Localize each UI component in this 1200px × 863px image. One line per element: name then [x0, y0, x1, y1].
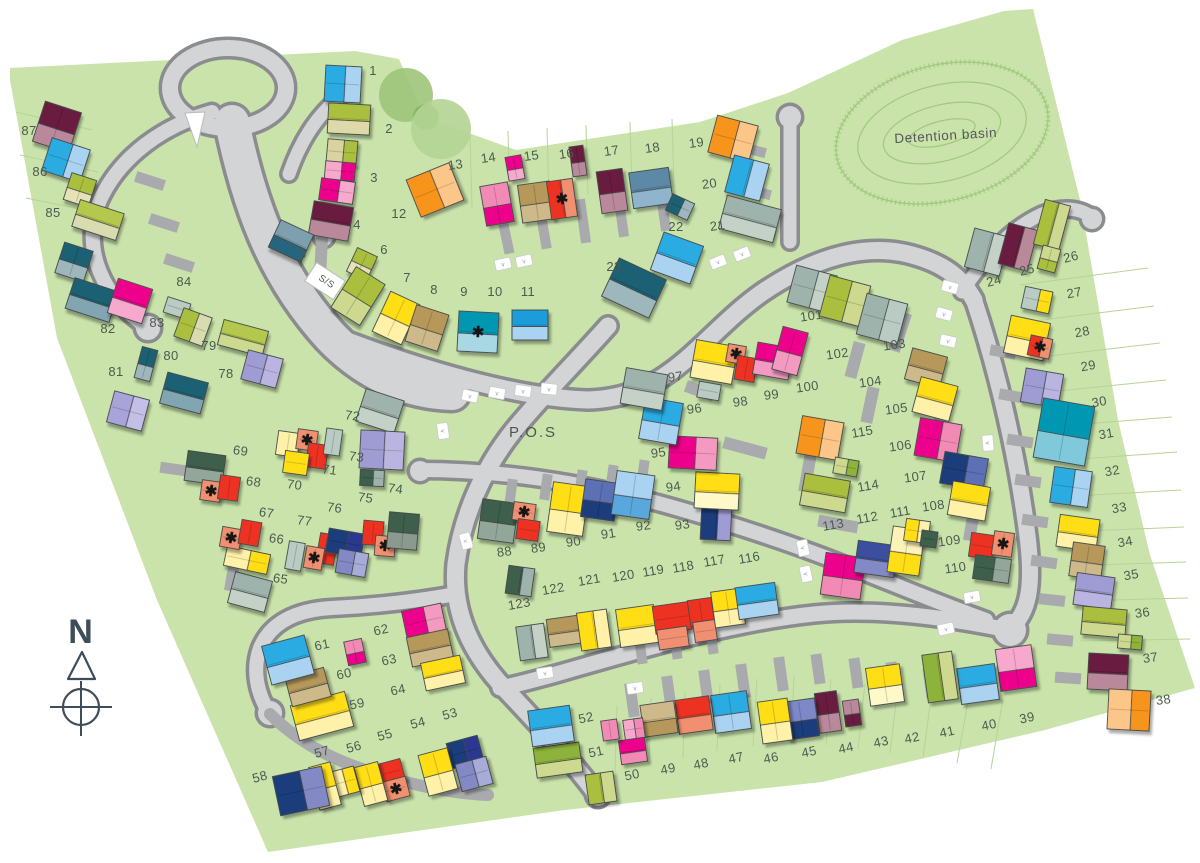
star-marker: ✱	[471, 324, 485, 342]
plot-number-label: 72	[344, 407, 361, 424]
house-footprint	[640, 701, 678, 737]
plot-number-label: 71	[321, 461, 338, 478]
house-footprint	[528, 705, 575, 746]
plot-number-label: 27	[1065, 284, 1083, 301]
plot-number-label: 84	[176, 274, 191, 289]
plot-number-label: 65	[272, 570, 289, 587]
house-footprint: ✱	[1027, 335, 1053, 359]
house-wing	[327, 119, 370, 135]
plot-number-label: 61	[313, 636, 331, 654]
plot-number-label: 89	[530, 539, 547, 556]
house-footprint	[620, 368, 668, 411]
plot-number-label: 109	[937, 532, 962, 550]
house-wing	[694, 492, 739, 510]
house-footprint	[360, 469, 385, 486]
plot-number-label: 49	[659, 760, 677, 778]
house-footprint	[512, 310, 548, 340]
visitor-parking-marker: v	[963, 590, 981, 604]
plot-number-label: 22	[668, 219, 683, 234]
house-footprint	[973, 555, 1012, 584]
plot-number-label: 38	[1155, 691, 1172, 708]
house-footprint	[623, 718, 646, 741]
plot-number-label: 88	[496, 543, 513, 560]
plot-number-label: 41	[938, 723, 956, 741]
house-footprint	[947, 481, 990, 521]
plot-number-label: 13	[447, 156, 464, 173]
plot-number-label: 76	[326, 499, 343, 516]
plot-number-label: 14	[480, 149, 497, 166]
plot-number-label: 44	[837, 739, 855, 757]
plot-number-label: 92	[635, 517, 652, 534]
plot-number-label: 107	[903, 468, 928, 486]
plot-number-label: 28	[1073, 323, 1091, 340]
plot-number-label: 78	[218, 366, 233, 381]
plot-number-label: 51	[587, 743, 605, 761]
road-bulb	[994, 614, 1026, 646]
plot-number-label: 87	[21, 123, 36, 138]
house-footprint	[601, 719, 620, 741]
plot-number-label: 93	[674, 516, 691, 533]
plot-number-label: 80	[163, 348, 178, 363]
plot-number-label: 98	[732, 393, 749, 410]
plot-number-label: 33	[1110, 499, 1128, 516]
house-footprint	[693, 620, 718, 643]
house-footprint	[516, 623, 548, 661]
house-footprint	[995, 645, 1036, 692]
plot-number-label: 108	[921, 497, 946, 515]
house-footprint	[757, 698, 793, 744]
house-footprint	[842, 699, 861, 727]
plot-number-label: 42	[903, 729, 921, 747]
plot-number-label: 63	[380, 651, 398, 669]
house-footprint	[1081, 606, 1127, 638]
plot-number-label: 79	[201, 338, 216, 353]
house-footprint	[217, 475, 240, 502]
house-footprint	[1073, 573, 1115, 610]
site-plan-map: vvvvvvvvvvvvvvvvvvvv✱✱✱✱✱✱✱✱✱✱✱✱12345678…	[0, 0, 1200, 863]
plot-number-label: 52	[577, 709, 595, 727]
house-footprint	[700, 505, 732, 541]
plot-number-label: 12	[391, 206, 406, 221]
plot-number-label: 20	[701, 175, 718, 192]
house-footprint	[335, 549, 369, 578]
plot-number-label: 43	[872, 733, 890, 751]
house-footprint	[359, 430, 405, 470]
house-wing	[717, 506, 732, 541]
house-footprint	[516, 519, 541, 542]
plot-number-label: 85	[45, 205, 60, 220]
plot-number-label: 105	[884, 400, 909, 418]
house-footprint	[618, 737, 647, 764]
plot-number-label: 104	[858, 373, 883, 391]
plot-number-label: 86	[32, 164, 47, 179]
plot-number-label: 83	[149, 315, 164, 330]
plot-number-label: 16	[558, 145, 575, 162]
plot-number-label: 32	[1103, 462, 1121, 479]
plot-number-label: 40	[980, 716, 998, 734]
house-footprint: ✱	[457, 311, 499, 353]
plot-number-label: 48	[692, 755, 710, 773]
plot-number-label: 94	[665, 478, 682, 495]
plot-number-label: 75	[357, 489, 374, 506]
plot-number-label: 31	[1097, 425, 1115, 442]
plot-number-label: 21	[709, 217, 726, 234]
visitor-parking-marker: v	[488, 386, 506, 400]
north-label: N	[68, 613, 94, 651]
house-footprint	[735, 582, 779, 619]
plot-number-label: 102	[825, 345, 850, 363]
plot-number-label: 2	[385, 121, 393, 136]
house-footprint	[324, 161, 355, 182]
plot-number-label: 46	[762, 749, 780, 767]
plot-number-label: 95	[650, 444, 667, 461]
plot-number-label: 35	[1122, 566, 1140, 583]
plot-number-label: 106	[888, 437, 913, 455]
house-footprint	[866, 664, 905, 706]
house-footprint	[283, 450, 310, 475]
plot-number-label: 62	[372, 621, 390, 639]
house-footprint	[324, 65, 362, 103]
driveway	[1055, 672, 1082, 685]
visitor-parking-marker: v	[626, 681, 643, 694]
road-bulb	[779, 106, 801, 128]
house-wing	[512, 327, 548, 341]
plot-number-label: 96	[686, 400, 703, 417]
road-bulb	[1082, 209, 1102, 229]
plot-number-label: 47	[727, 749, 745, 767]
plot-number-label: 69	[232, 442, 249, 459]
house-footprint	[577, 609, 612, 651]
house-footprint	[796, 416, 844, 461]
plot-number-label: 64	[389, 681, 407, 699]
house-footprint	[596, 168, 628, 213]
plot-number-label: 17	[603, 142, 620, 159]
plot-number-label: 18	[644, 139, 661, 156]
plot-number-label: 7	[403, 270, 411, 285]
house-footprint	[711, 691, 752, 734]
visitor-parking-marker: v	[536, 666, 553, 679]
map-generated-layer: vvvvvvvvvvvvvvvvvvvv✱✱✱✱✱✱✱✱✱✱✱✱12345678…	[10, 9, 1195, 852]
plot-number-label: 15	[523, 147, 540, 164]
plot-number-label: 99	[763, 386, 780, 403]
plot-number-label: 97	[667, 368, 684, 385]
house-footprint: ✱	[303, 546, 325, 571]
plot-number-label: 39	[1018, 709, 1036, 727]
tree	[411, 99, 471, 159]
north-arrow-icon	[68, 652, 95, 679]
plot-number-label: 10	[487, 284, 502, 299]
plot-number-label: 81	[108, 364, 123, 379]
plot-number-label: 74	[387, 480, 404, 497]
plot-number-label: 36	[1134, 604, 1151, 621]
visitor-parking-marker: v	[436, 422, 449, 439]
house-footprint	[694, 472, 740, 510]
visitor-parking-marker: v	[982, 435, 994, 452]
house-footprint	[319, 178, 356, 205]
plot-number-label: 77	[296, 512, 313, 529]
plot-number-label: 82	[100, 321, 115, 336]
plot-number-label: 100	[795, 378, 820, 396]
house-footprint	[308, 201, 353, 241]
house-footprint	[386, 512, 419, 550]
house-footprint	[957, 664, 1000, 705]
plot-number-label: 73	[348, 448, 365, 465]
house-footprint: ✱	[991, 531, 1014, 558]
visitor-parking-marker: v	[540, 383, 557, 396]
house-footprint: ✱	[546, 178, 577, 219]
plot-number-label: 37	[1142, 649, 1159, 666]
plot-number-label: 45	[800, 743, 818, 761]
house-footprint	[238, 519, 262, 546]
plot-number-label: 3	[370, 170, 378, 185]
plot-number-label: 11	[521, 284, 535, 299]
plot-number-label: 34	[1116, 533, 1134, 550]
plot-number-label: 6	[380, 242, 388, 257]
house-footprint	[323, 428, 342, 456]
house-footprint	[533, 742, 583, 778]
house-footprint	[1117, 634, 1142, 650]
house-footprint	[616, 605, 659, 648]
plot-number-label: 4	[353, 217, 361, 232]
plot-number-label: 67	[258, 504, 275, 521]
house-footprint	[585, 771, 617, 805]
house-footprint	[657, 626, 689, 650]
plot-number-label: 110	[943, 559, 967, 577]
plot-number-label: 59	[348, 695, 366, 713]
driveway	[1047, 633, 1074, 646]
plot-number-label: 1	[369, 63, 377, 78]
house-footprint	[629, 167, 674, 208]
house-footprint	[611, 471, 655, 520]
public-open-space-label: P.O.S	[509, 424, 557, 441]
house-footprint	[920, 530, 938, 548]
house-footprint	[922, 651, 958, 703]
plot-number-label: 101	[799, 307, 824, 325]
plot-number-label: 70	[286, 476, 303, 493]
plot-number-label: 68	[245, 473, 262, 490]
house-footprint	[1087, 653, 1129, 691]
plot-number-label: 50	[623, 766, 641, 784]
house-footprint	[675, 696, 713, 734]
house-wing	[1087, 673, 1128, 691]
visitor-parking-marker: v	[514, 384, 531, 397]
plot-number-label: 23	[606, 259, 621, 274]
plot-number-label: 19	[688, 134, 705, 151]
plot-number-label: 9	[460, 284, 468, 299]
plot-number-label: 29	[1079, 357, 1097, 374]
site-plan-page: vvvvvvvvvvvvvvvvvvvv✱✱✱✱✱✱✱✱✱✱✱✱12345678…	[0, 0, 1200, 863]
house-footprint	[1107, 689, 1151, 731]
house-footprint	[1050, 467, 1093, 508]
house-footprint	[327, 103, 371, 135]
plot-number-label: 66	[268, 530, 285, 547]
plot-number-label: 30	[1090, 393, 1108, 410]
plot-number-label: 90	[565, 533, 582, 550]
plot-number-label: 91	[600, 525, 617, 542]
plot-number-label: 8	[430, 282, 438, 297]
house-footprint	[505, 565, 535, 596]
house-footprint	[697, 381, 721, 401]
plot-number-label: 60	[335, 665, 353, 683]
house-footprint	[1033, 398, 1095, 466]
house-footprint	[477, 499, 518, 544]
plot-number-label: 103	[882, 336, 907, 354]
road-bulb	[410, 461, 430, 481]
north-compass: N	[50, 613, 112, 736]
